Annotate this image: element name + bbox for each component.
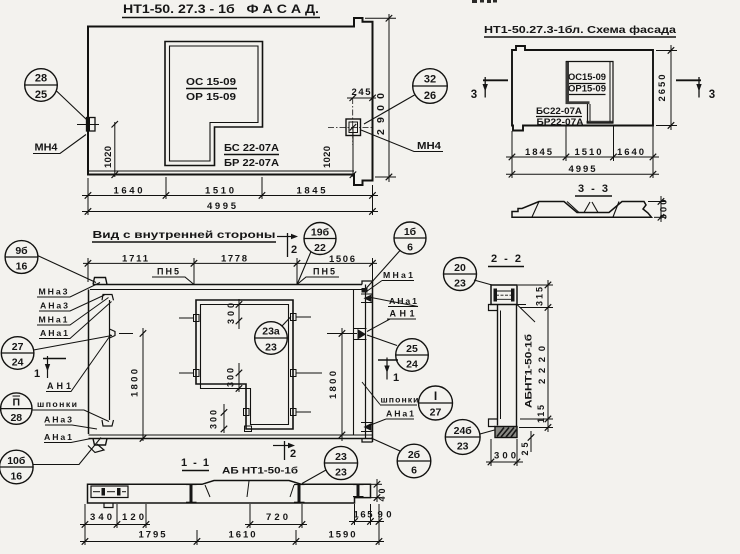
svg-text:1020: 1020: [322, 146, 333, 168]
svg-text:1590: 1590: [329, 530, 356, 541]
svg-text:1845: 1845: [525, 147, 553, 158]
svg-text:16: 16: [16, 261, 28, 273]
svg-text:25: 25: [406, 343, 418, 355]
svg-text:3-3: 3-3: [578, 183, 608, 195]
svg-text:МНа1: МНа1: [383, 270, 413, 280]
svg-text:I: I: [434, 389, 437, 403]
svg-text:300: 300: [226, 303, 236, 324]
svg-text:2: 2: [290, 448, 296, 460]
svg-text:ПН5: ПН5: [157, 267, 179, 277]
svg-text:ОР 15-09: ОР 15-09: [186, 92, 237, 103]
svg-text:1506: 1506: [329, 254, 355, 265]
svg-text:1: 1: [34, 368, 40, 380]
svg-text:1б: 1б: [404, 226, 417, 238]
svg-text:АБНТ1-50-1б: АБНТ1-50-1б: [524, 334, 535, 408]
svg-text:23: 23: [454, 278, 466, 290]
svg-text:2: 2: [291, 244, 297, 256]
svg-text:720: 720: [266, 512, 288, 523]
svg-text:300: 300: [659, 200, 670, 220]
svg-text:1778: 1778: [221, 254, 247, 265]
svg-text:МНа3: МНа3: [39, 287, 68, 297]
svg-text:ОР15-09: ОР15-09: [568, 84, 606, 95]
svg-text:БС 22-07А: БС 22-07А: [224, 143, 279, 154]
svg-text:АНа1: АНа1: [386, 409, 414, 419]
svg-text:27: 27: [12, 341, 24, 353]
svg-text:23: 23: [457, 441, 469, 453]
svg-text:3: 3: [709, 89, 715, 101]
svg-text:300: 300: [226, 368, 236, 387]
svg-text:300: 300: [494, 451, 516, 462]
svg-text:1640: 1640: [617, 147, 644, 158]
svg-text:1: 1: [393, 372, 399, 384]
svg-text:АНа1: АНа1: [40, 328, 68, 338]
svg-text:2650: 2650: [657, 75, 668, 102]
svg-text:120: 120: [122, 512, 144, 523]
svg-text:22: 22: [314, 242, 326, 254]
svg-text:1510: 1510: [575, 147, 602, 158]
svg-text:23: 23: [335, 467, 347, 479]
svg-text:П: П: [13, 397, 21, 409]
svg-text:ПН5: ПН5: [313, 267, 335, 277]
svg-text:АН1: АН1: [47, 381, 71, 391]
svg-text:АНа3: АНа3: [40, 301, 68, 311]
svg-text:1845: 1845: [297, 186, 327, 197]
svg-text:1020: 1020: [103, 146, 114, 168]
svg-text:300: 300: [209, 410, 219, 429]
svg-text:ОС15-09: ОС15-09: [568, 72, 606, 83]
svg-text:АН1: АН1: [390, 309, 415, 319]
svg-text:4995: 4995: [207, 201, 237, 212]
svg-text:26: 26: [424, 90, 436, 102]
svg-text:БР22-07А: БР22-07А: [537, 117, 584, 128]
svg-text:4995: 4995: [569, 164, 597, 175]
svg-text:шпонки: шпонки: [37, 399, 77, 409]
svg-text:Вид с внутренней стороны: Вид с внутренней стороны: [93, 229, 276, 241]
svg-text:1795: 1795: [139, 530, 167, 541]
svg-text:9б: 9б: [15, 245, 28, 257]
svg-text:24б: 24б: [454, 425, 473, 437]
svg-text:МН4: МН4: [35, 143, 58, 154]
svg-text:МНа1: МНа1: [39, 315, 68, 325]
svg-text:3: 3: [471, 89, 477, 101]
svg-text:6: 6: [407, 242, 413, 254]
svg-text:БР 22-07А: БР 22-07А: [224, 158, 279, 169]
svg-text:165: 165: [354, 510, 374, 521]
svg-text:1711: 1711: [122, 254, 149, 265]
svg-text:2-2: 2-2: [491, 253, 521, 265]
svg-text:24: 24: [12, 357, 24, 369]
svg-text:2б: 2б: [408, 449, 421, 461]
svg-text:АБ НТ1-50-1б: АБ НТ1-50-1б: [222, 466, 298, 477]
svg-text:16: 16: [10, 471, 22, 483]
svg-text:БС22-07А: БС22-07А: [536, 106, 582, 117]
svg-text:27: 27: [430, 407, 442, 419]
svg-text:НТ1-50.27.3-1бл. Схема фасада: НТ1-50.27.3-1бл. Схема фасада: [484, 24, 676, 36]
svg-text:23а: 23а: [262, 326, 280, 338]
svg-text:340: 340: [90, 512, 112, 523]
svg-text:ОС 15-09: ОС 15-09: [186, 77, 237, 88]
svg-text:1-1: 1-1: [181, 457, 209, 469]
svg-text:315: 315: [535, 287, 545, 306]
svg-text:МН4: МН4: [417, 141, 441, 152]
svg-text:6: 6: [411, 465, 417, 477]
svg-text:23: 23: [335, 451, 347, 463]
svg-text:25: 25: [35, 89, 47, 101]
svg-text:23: 23: [265, 342, 277, 354]
svg-text:АНа1: АНа1: [389, 296, 417, 306]
svg-text:115: 115: [536, 405, 546, 423]
svg-text:АНа3: АНа3: [44, 415, 72, 425]
svg-text:НТ1-50. 27.3 - 1б Ф А С А Д.: НТ1-50. 27.3 - 1б Ф А С А Д.: [123, 4, 319, 16]
svg-text:32: 32: [424, 74, 436, 86]
svg-text:шпонки: шпонки: [381, 395, 419, 405]
svg-text:28: 28: [10, 412, 22, 424]
svg-text:АНа1: АНа1: [44, 432, 72, 442]
svg-text:24: 24: [406, 359, 418, 371]
svg-text:28: 28: [35, 73, 47, 85]
svg-text:1610: 1610: [229, 530, 256, 541]
svg-text:19б: 19б: [311, 227, 330, 239]
svg-text:20: 20: [454, 262, 466, 274]
svg-text:10б: 10б: [7, 455, 26, 467]
